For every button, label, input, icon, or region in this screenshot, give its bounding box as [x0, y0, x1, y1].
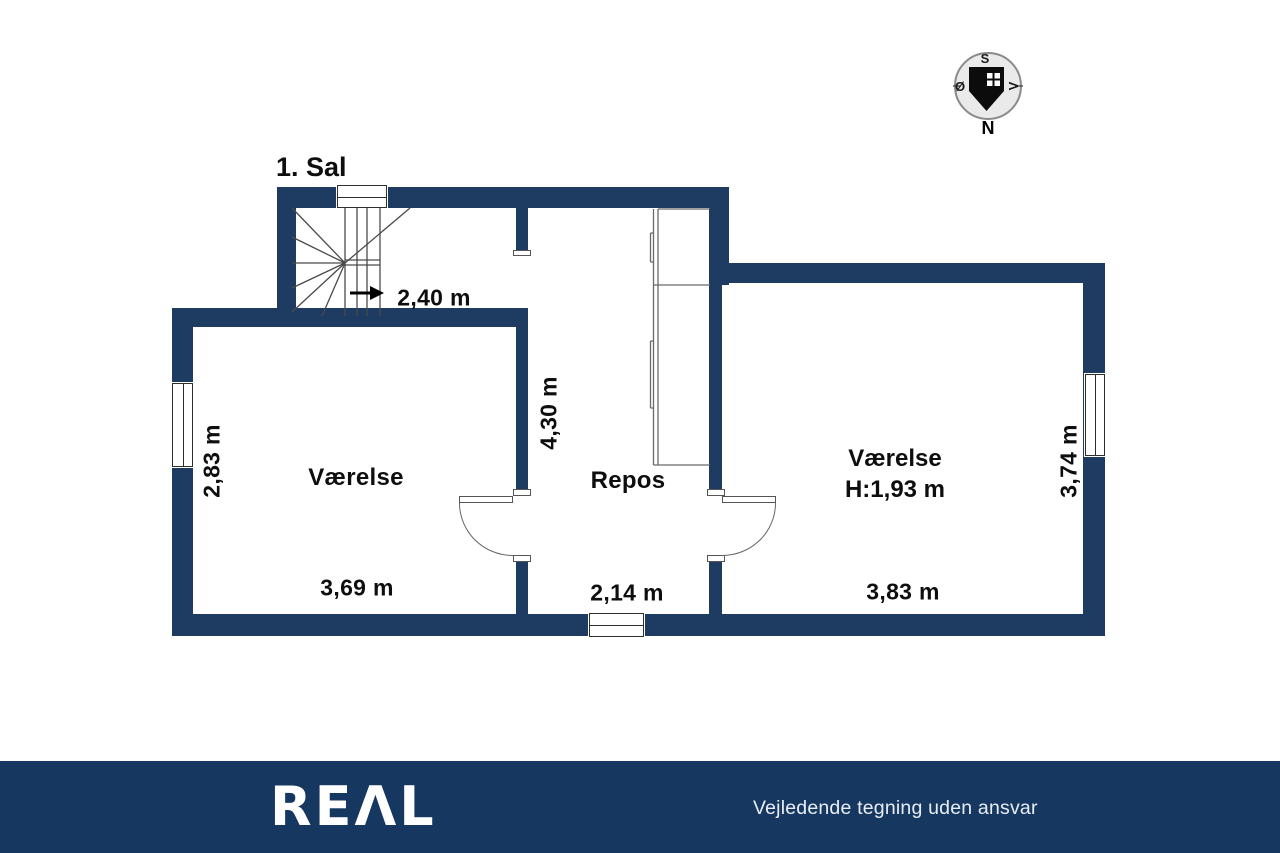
staircase [292, 208, 410, 316]
opening-cap [513, 555, 531, 562]
opening-cap [513, 489, 531, 496]
left-room-depth-dimension: 2,83 m [199, 424, 226, 497]
footer-bar: REΛL Vejledende tegning uden ansvar [0, 761, 1280, 853]
window-mullion [183, 384, 184, 466]
right-room-name: Værelse [848, 445, 941, 472]
window-landing [588, 612, 645, 638]
compass-rose: S Ø V N [945, 40, 1031, 136]
wall-repos-right-lower [709, 558, 722, 616]
right-room-door-leaf [722, 496, 776, 503]
window-mullion [590, 625, 643, 626]
stairs-width-dimension: 2,40 m [397, 285, 470, 312]
real-logo: REΛL [270, 767, 437, 847]
window-left-room [171, 382, 194, 468]
house-icon [987, 73, 1000, 86]
left-room-width-dimension: 3,69 m [320, 575, 393, 602]
stair-direction-arrow [350, 286, 384, 300]
landing-width-dimension: 2,14 m [590, 580, 663, 607]
landing-depth-dimension: 4,30 m [536, 376, 563, 449]
wall-repos-right-ext [709, 206, 729, 285]
window-right-room [1084, 373, 1106, 457]
window-mullion [338, 197, 386, 198]
opening-cap [707, 555, 725, 562]
wall-rightroom-top [709, 263, 1105, 283]
left-room-label: Værelse [308, 464, 404, 492]
disclaimer-text: Vejledende tegning uden ansvar [753, 797, 1038, 820]
left-room-door-leaf [459, 496, 513, 503]
compass-south-label: S [981, 51, 990, 66]
floor-title: 1. Sal [276, 152, 347, 183]
right-room-width-dimension: 3,83 m [866, 579, 939, 606]
closet [651, 209, 711, 465]
compass-north-label: N [982, 118, 995, 136]
wall-left-outer [172, 308, 193, 636]
opening-cap [707, 489, 725, 496]
left-room-door-swing-arc [459, 503, 513, 556]
wall-repos-right-upper [709, 283, 722, 494]
landing-label: Repos [591, 467, 666, 495]
floorplan-canvas: 1. Sal 2,40 m Værelse 2,83 m 3,69 m 4,30… [0, 0, 1280, 853]
right-room-label: Værelse H:1,93 m [845, 443, 945, 505]
compass-east-label: Ø [955, 79, 965, 94]
wall-stairhall-left [277, 187, 296, 327]
compass-west-label: V [1006, 81, 1021, 90]
opening-cap [513, 250, 531, 256]
wall-repos-left-lower [516, 558, 528, 616]
wall-repos-left-mid [516, 308, 528, 494]
right-room-depth-dimension: 3,74 m [1056, 424, 1083, 497]
right-room-ceiling-height: H:1,93 m [845, 476, 945, 503]
wall-repos-left-upper [516, 206, 528, 255]
window-stairs [336, 184, 388, 209]
window-mullion [1095, 375, 1096, 455]
right-room-door-swing-arc [722, 503, 776, 556]
